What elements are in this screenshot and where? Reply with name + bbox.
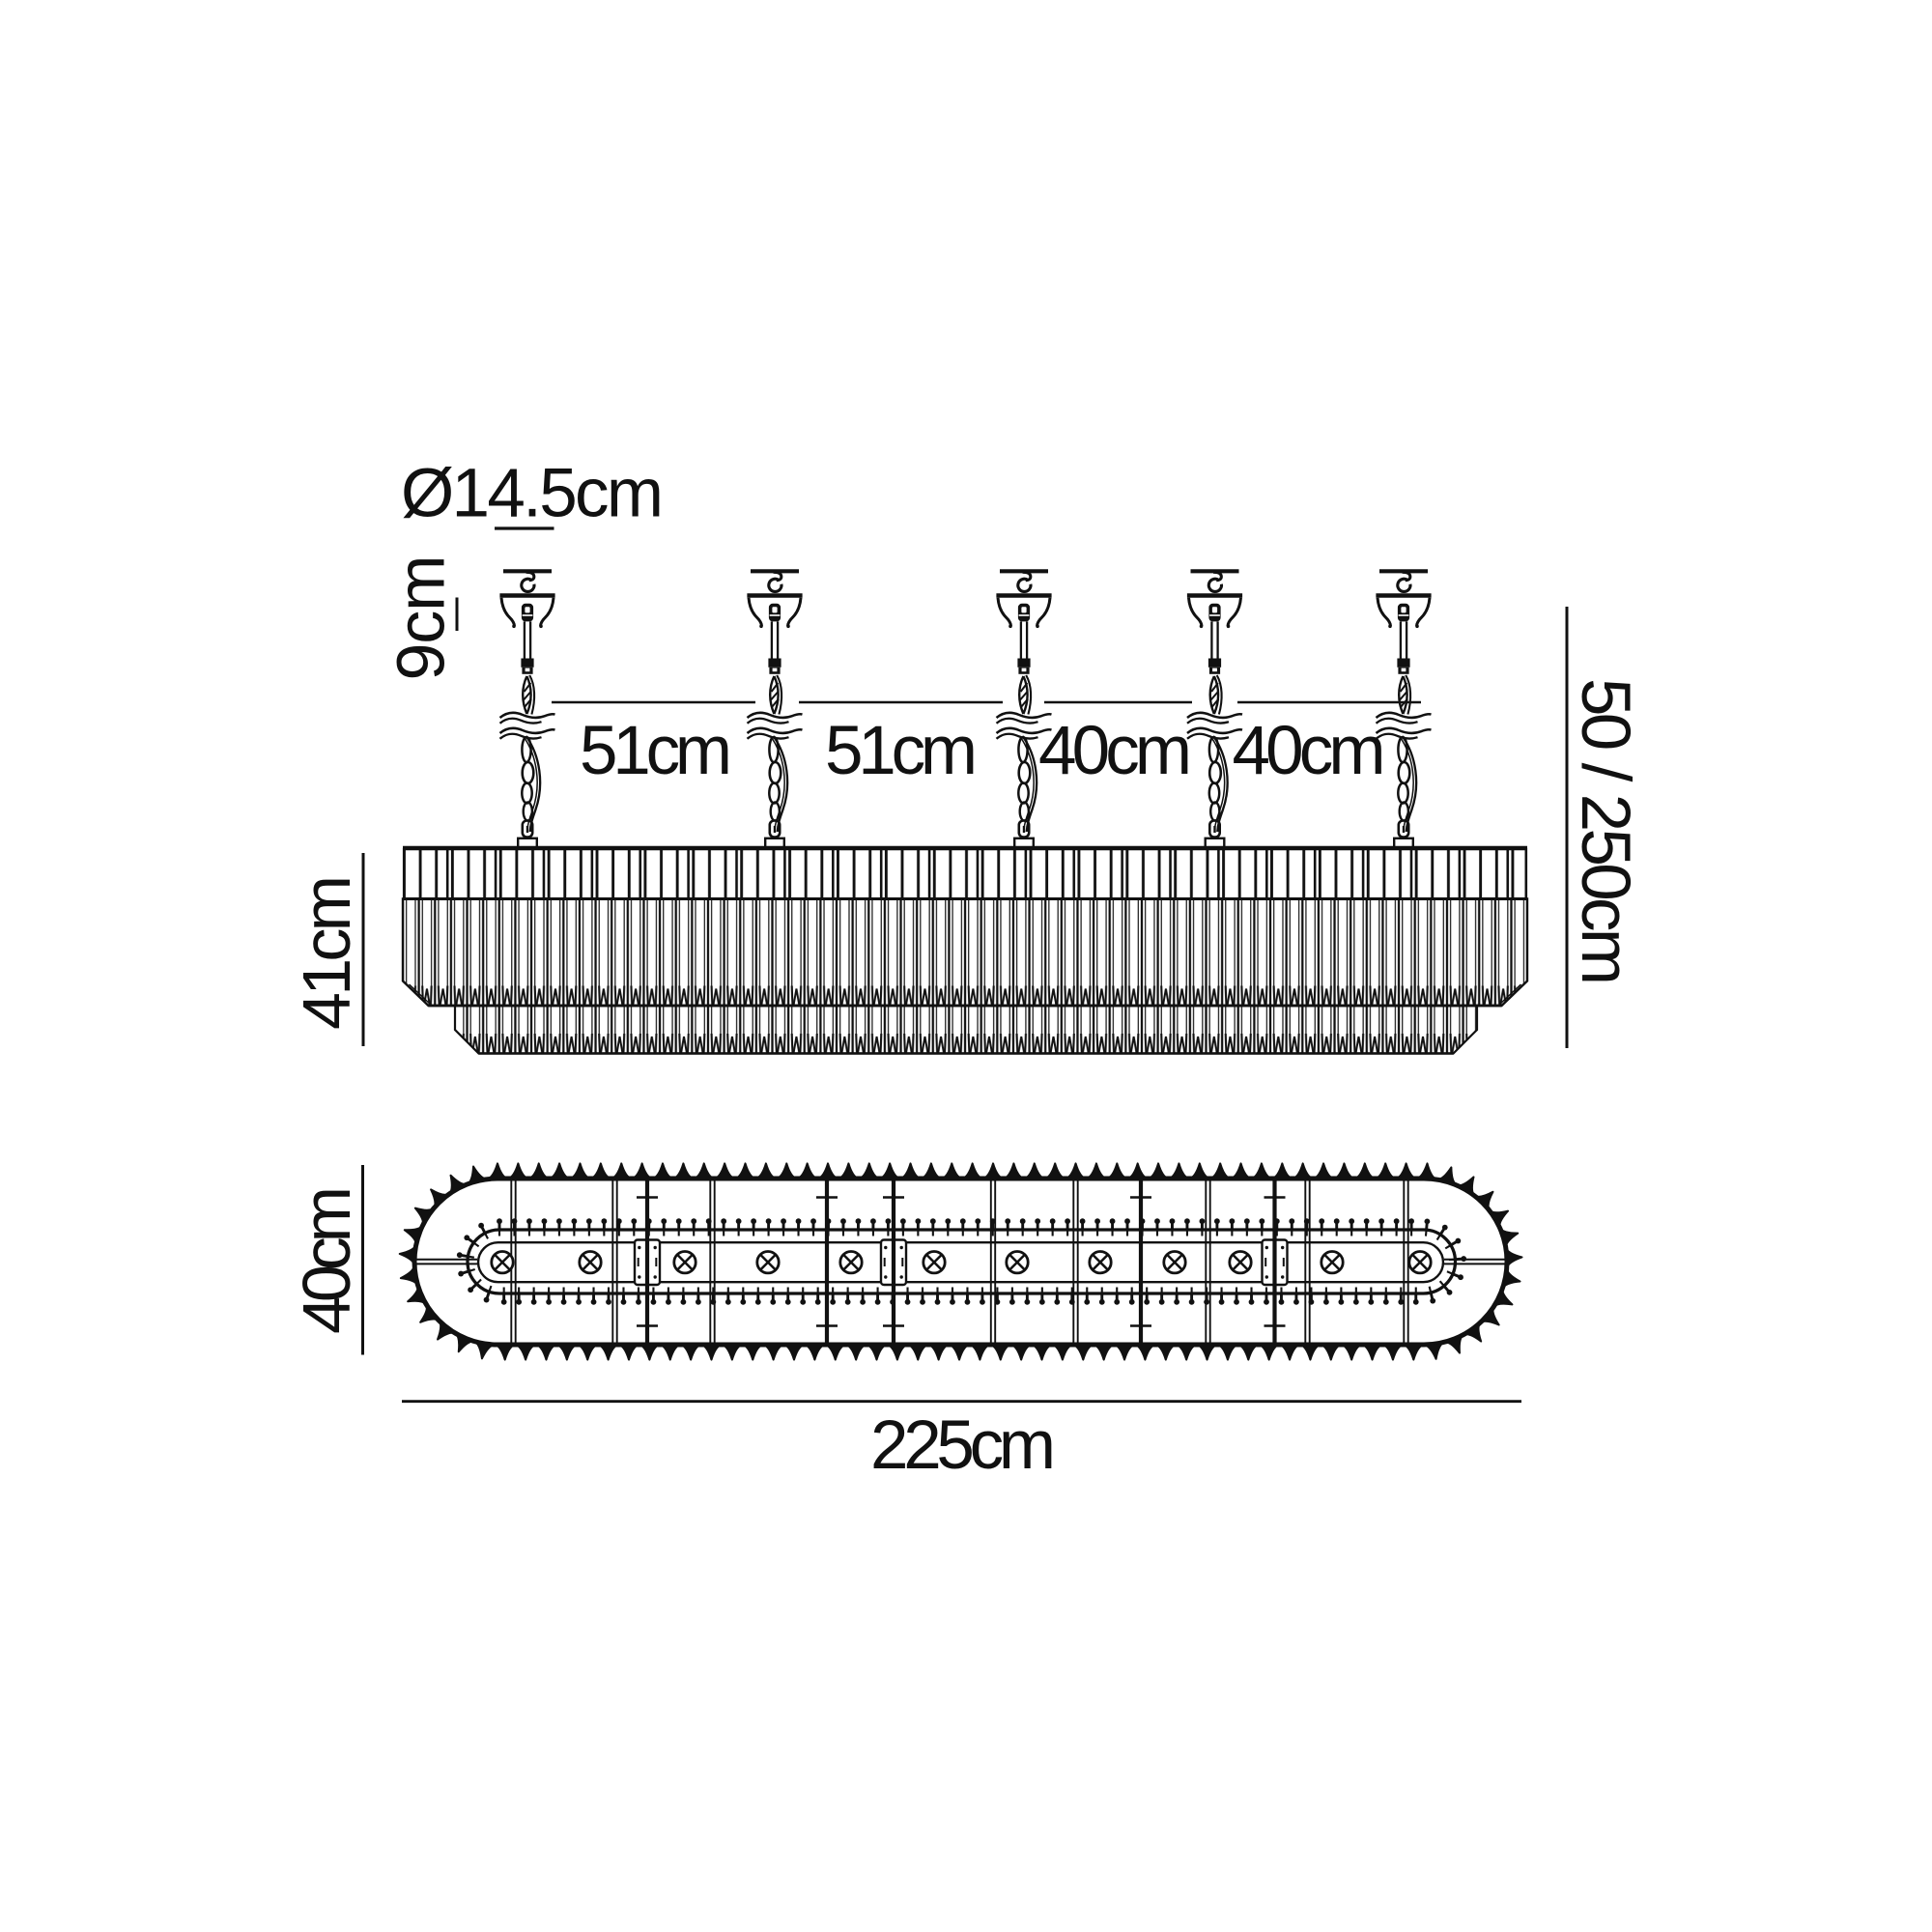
svg-text:51cm: 51cm [580,713,732,789]
svg-text:40cm: 40cm [1233,713,1386,789]
svg-text:9cm: 9cm [384,555,459,681]
svg-text:40cm: 40cm [1038,713,1192,789]
svg-text:225cm: 225cm [870,1407,1056,1484]
svg-text:40cm: 40cm [289,1186,364,1334]
svg-text:41cm: 41cm [289,875,364,1030]
svg-text:51cm: 51cm [825,713,978,789]
svg-text:Ø14.5cm: Ø14.5cm [401,456,664,532]
svg-text:50 / 250cm: 50 / 250cm [1567,678,1643,985]
